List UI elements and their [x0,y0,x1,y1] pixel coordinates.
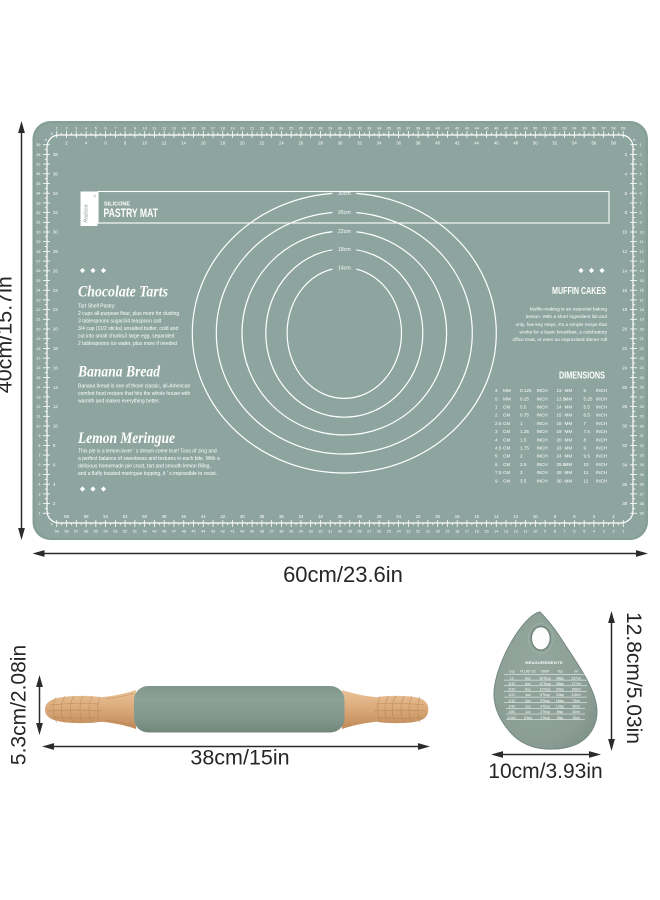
svg-text:20: 20 [53,327,58,332]
svg-text:16tsp: 16tsp [556,699,564,703]
svg-text:15: 15 [484,529,488,533]
svg-text:9: 9 [38,434,40,438]
svg-text:48tsp: 48tsp [556,676,564,680]
svg-text:INCH: INCH [596,454,607,459]
svg-text:18: 18 [455,514,460,519]
svg-text:20: 20 [436,529,440,533]
svg-text:6.5: 6.5 [584,413,591,418]
svg-text:MM: MM [565,421,573,426]
svg-text:INCH: INCH [596,421,607,426]
svg-text:Tsp: Tsp [557,670,562,674]
svg-text:31: 31 [348,127,352,131]
svg-text:34: 34 [640,463,644,467]
svg-text:177ml: 177ml [571,682,580,686]
svg-text:INCH: INCH [537,388,548,393]
svg-text:MM: MM [565,413,573,418]
svg-text:1/2C: 1/2C [508,693,516,697]
svg-text:36: 36 [36,172,40,176]
svg-text:39: 39 [426,127,430,131]
svg-text:12: 12 [36,405,40,409]
svg-text:54: 54 [103,514,108,519]
svg-text:3: 3 [640,163,642,167]
svg-text:47: 47 [172,529,176,533]
svg-text:36: 36 [622,482,627,487]
svg-text:56: 56 [592,140,597,145]
svg-text:13: 13 [640,260,644,264]
svg-text:INCH: INCH [537,478,548,483]
svg-text:46: 46 [182,529,186,533]
svg-text:18: 18 [221,127,225,131]
svg-text:7.5: 7.5 [584,429,591,434]
svg-text:5: 5 [495,396,498,401]
svg-text:MM: MM [565,478,573,483]
svg-text:9: 9 [495,478,498,483]
svg-text:INCH: INCH [537,429,548,434]
svg-text:1Tbsp: 1Tbsp [540,716,550,720]
svg-text:MM: MM [565,462,573,467]
svg-text:10: 10 [622,230,627,235]
svg-text:FLUID OZ: FLUID OZ [520,670,535,674]
svg-text:3: 3 [603,529,605,533]
svg-text:28: 28 [357,514,362,519]
svg-text:32: 32 [318,514,323,519]
svg-text:30ml: 30ml [572,710,580,714]
svg-text:4oz: 4oz [525,693,531,697]
svg-text:30: 30 [36,230,40,234]
svg-text:4.5: 4.5 [495,446,502,451]
svg-text:32tsp: 32tsp [556,688,564,692]
svg-text:24: 24 [396,529,400,533]
svg-text:38: 38 [260,514,265,519]
svg-text:DIMENSIONS: DIMENSIONS [559,369,605,381]
svg-text:55: 55 [94,529,98,533]
svg-text:24: 24 [279,127,283,131]
svg-text:Tart Shell Pastry:: Tart Shell Pastry: [78,303,116,309]
svg-text:5: 5 [640,182,642,186]
svg-text:2: 2 [495,413,498,418]
svg-text:18: 18 [36,347,40,351]
svg-text:48: 48 [162,529,166,533]
svg-text:25: 25 [387,529,391,533]
svg-text:2.5: 2.5 [520,462,527,467]
svg-text:5: 5 [583,529,585,533]
svg-text:38: 38 [416,127,420,131]
svg-text:10cm/3.93in: 10cm/3.93in [488,760,602,783]
svg-text:1/8C: 1/8C [508,710,516,714]
svg-text:19: 19 [640,318,644,322]
svg-text:29: 29 [348,529,352,533]
svg-text:22: 22 [53,307,58,312]
svg-text:CM: CM [503,413,510,418]
svg-text:1: 1 [495,405,498,410]
svg-text:30: 30 [338,140,343,145]
svg-text:1.75: 1.75 [520,446,529,451]
svg-text:23: 23 [557,446,563,451]
svg-text:3/4 cup (11/2 sticks) unsalted: 3/4 cup (11/2 sticks) unsalted butter, c… [78,326,178,332]
svg-text:10: 10 [533,514,538,519]
svg-text:11Tbsp: 11Tbsp [539,688,550,692]
svg-text:1/16C: 1/16C [507,716,517,720]
svg-text:11: 11 [152,127,156,131]
svg-text:INCH: INCH [596,446,607,451]
svg-text:18: 18 [455,529,459,533]
svg-text:19: 19 [230,127,234,131]
svg-text:3: 3 [75,127,77,131]
svg-text:11: 11 [584,478,589,483]
svg-text:10: 10 [584,462,590,467]
svg-text:5oz: 5oz [525,688,531,692]
svg-text:29: 29 [328,127,332,131]
svg-text:8: 8 [554,529,556,533]
svg-text:12: 12 [514,529,518,533]
svg-text:10: 10 [533,529,537,533]
svg-text:0.5: 0.5 [520,405,527,410]
svg-text:7: 7 [640,201,642,205]
svg-text:14: 14 [622,268,627,273]
svg-text:48: 48 [162,514,167,519]
svg-text:MM: MM [565,429,573,434]
svg-text:23: 23 [36,298,40,302]
svg-text:11: 11 [584,470,589,475]
svg-text:1: 1 [622,529,624,533]
svg-text:45: 45 [191,529,195,533]
svg-text:6: 6 [640,192,642,196]
svg-text:37: 37 [269,529,273,533]
svg-text:33: 33 [367,127,371,131]
svg-text:16: 16 [36,366,40,370]
svg-text:22: 22 [260,140,265,145]
svg-text:2 tablespoons ice water, plus: 2 tablespoons ice water, plus more if ne… [78,341,177,347]
svg-text:INCH: INCH [537,446,548,451]
svg-text:43: 43 [211,529,215,533]
svg-text:MM: MM [565,470,573,475]
svg-text:42: 42 [221,529,225,533]
svg-text:INCH: INCH [537,470,548,475]
svg-text:26: 26 [53,268,58,273]
svg-text:13: 13 [504,529,508,533]
svg-text:INCH: INCH [537,437,548,442]
svg-text:2oz: 2oz [525,705,531,709]
svg-text:MM: MM [503,388,511,393]
svg-text:3: 3 [38,492,40,496]
svg-text:INCH: INCH [537,405,548,410]
svg-text:16: 16 [622,288,627,293]
svg-text:INCH: INCH [596,470,607,475]
svg-text:INCH: INCH [537,396,548,401]
svg-text:14: 14 [557,405,563,410]
svg-text:38: 38 [622,501,627,506]
svg-text:15: 15 [640,279,644,283]
svg-text:24: 24 [53,288,58,293]
svg-text:38cm/15in: 38cm/15in [190,746,289,770]
svg-text:79ml: 79ml [572,699,580,703]
svg-text:CM: CM [503,478,510,483]
svg-text:28: 28 [640,405,644,409]
svg-text:lesson. With a short ingredien: lesson. With a short ingredient list and [526,314,607,320]
svg-text:59: 59 [55,529,59,533]
svg-text:0.5oz: 0.5oz [524,716,533,720]
svg-text:57: 57 [602,127,606,131]
svg-text:MM: MM [565,446,573,451]
svg-text:28: 28 [53,249,58,254]
svg-text:39: 39 [250,529,254,533]
svg-text:8oz: 8oz [525,676,531,680]
svg-text:2/3C: 2/3C [508,688,516,692]
svg-text:25: 25 [36,279,40,283]
svg-text:12: 12 [162,140,167,145]
svg-text:34: 34 [377,127,381,131]
svg-text:31: 31 [36,221,40,225]
svg-text:17: 17 [465,529,469,533]
svg-text:20: 20 [435,514,440,519]
svg-text:3.5: 3.5 [520,478,527,483]
svg-text:3/4C: 3/4C [508,682,516,686]
svg-text:26cm: 26cm [338,210,351,216]
svg-text:9: 9 [134,127,136,131]
svg-text:58: 58 [64,514,69,519]
svg-text:37: 37 [36,163,40,167]
svg-text:34: 34 [299,514,304,519]
svg-text:office treat, or even an impro: office treat, or even an improvised dinn… [512,337,607,343]
svg-text:20: 20 [622,327,627,332]
svg-text:30: 30 [640,424,644,428]
svg-text:32: 32 [640,444,644,448]
svg-text:18: 18 [640,308,644,312]
svg-text:23: 23 [640,357,644,361]
svg-text:24: 24 [279,140,284,145]
svg-text:Banana Bread: Banana Bread [77,364,161,381]
svg-text:29: 29 [640,415,644,419]
svg-text:4: 4 [495,437,498,442]
svg-text:10: 10 [53,424,58,429]
svg-text:28: 28 [357,529,361,533]
svg-text:34: 34 [299,529,303,533]
svg-text:51: 51 [543,127,547,131]
svg-text:8: 8 [38,444,40,448]
svg-text:30: 30 [338,127,342,131]
svg-text:5: 5 [495,454,498,459]
svg-text:37: 37 [640,492,644,496]
svg-text:CM: CM [503,454,510,459]
svg-text:35: 35 [640,473,644,477]
svg-text:50: 50 [143,529,147,533]
svg-text:42: 42 [455,140,460,145]
svg-text:22: 22 [416,514,421,519]
svg-text:27: 27 [367,529,371,533]
svg-text:41: 41 [230,529,234,533]
svg-text:16: 16 [474,514,479,519]
svg-text:MEASUREMENTS: MEASUREMENTS [525,660,563,665]
svg-text:5: 5 [584,388,587,393]
svg-text:6: 6 [105,127,107,131]
svg-text:60cm/23.6in: 60cm/23.6in [283,562,403,587]
svg-text:30: 30 [53,230,58,235]
svg-text:MM: MM [565,396,573,401]
svg-text:38: 38 [416,140,421,145]
svg-text:5.25: 5.25 [584,396,593,401]
svg-text:9.5: 9.5 [584,454,591,459]
svg-text:3: 3 [520,470,523,475]
svg-text:comfort food recipes that hits: comfort food recipes that hits the whole… [78,391,191,397]
svg-text:13: 13 [557,388,563,393]
svg-text:MM: MM [565,454,573,459]
svg-text:cut into small chunks3 large e: cut into small chunks3 large egg, separa… [78,333,175,339]
svg-text:16: 16 [640,289,644,293]
svg-text:CM: CM [503,446,510,451]
svg-text:1/4C: 1/4C [508,705,516,709]
svg-text:35: 35 [387,127,391,131]
svg-text:INCH: INCH [596,396,607,401]
svg-text:11: 11 [37,415,41,419]
svg-text:50: 50 [533,140,538,145]
svg-text:2: 2 [612,529,614,533]
svg-text:44: 44 [201,514,206,519]
svg-text:warmth and makes everything be: warmth and makes everything better. [78,399,160,405]
svg-text:20: 20 [557,437,563,442]
svg-text:7.5: 7.5 [495,470,502,475]
svg-text:INCH: INCH [537,462,548,467]
svg-text:ml: ml [574,670,578,674]
svg-text:36: 36 [279,529,283,533]
svg-text:41: 41 [445,127,449,131]
svg-text:36: 36 [53,171,58,176]
svg-text:16: 16 [53,365,58,370]
svg-text:MM: MM [503,396,511,401]
svg-text:1.25: 1.25 [520,429,529,434]
svg-text:CM: CM [503,437,510,442]
svg-text:3: 3 [495,388,498,393]
svg-text:6: 6 [38,463,40,467]
svg-text:56: 56 [592,127,596,131]
svg-text:17: 17 [640,298,644,302]
svg-text:4Tbsp: 4Tbsp [540,705,550,709]
svg-text:15: 15 [191,127,195,131]
svg-text:50: 50 [142,514,147,519]
svg-text:14: 14 [494,529,498,533]
svg-text:33: 33 [309,529,313,533]
svg-text:24tsp: 24tsp [556,693,564,697]
svg-text:27: 27 [309,127,313,131]
svg-text:MM: MM [565,405,573,410]
svg-text:7: 7 [38,454,40,458]
svg-text:19: 19 [36,337,40,341]
svg-text:6: 6 [573,529,575,533]
svg-text:31: 31 [640,434,644,438]
svg-text:19: 19 [445,529,449,533]
svg-text:14cm: 14cm [338,266,351,272]
svg-text:CM: CM [503,405,510,410]
svg-text:53: 53 [113,529,117,533]
svg-text:52: 52 [123,514,128,519]
svg-text:INCH: INCH [537,413,548,418]
svg-text:29: 29 [36,240,40,244]
svg-text:13: 13 [36,395,40,399]
svg-text:20: 20 [240,140,245,145]
svg-text:Cup: Cup [509,670,515,674]
svg-text:49: 49 [152,529,156,533]
svg-text:52: 52 [553,140,558,145]
svg-text:26: 26 [36,269,40,273]
svg-text:2Tbsp: 2Tbsp [540,710,550,714]
svg-text:CM: CM [503,462,510,467]
svg-text:9: 9 [544,529,546,533]
svg-text:8: 8 [124,127,126,131]
svg-text:38: 38 [640,502,644,506]
svg-text:36tsp: 36tsp [556,682,564,686]
svg-text:8: 8 [584,437,587,442]
svg-text:TBSP: TBSP [541,670,551,674]
svg-text:20: 20 [240,127,244,131]
svg-text:INCH: INCH [596,405,607,410]
svg-text:28: 28 [36,250,40,254]
svg-text:8Tbsp: 8Tbsp [540,693,550,697]
svg-text:28: 28 [622,404,627,409]
svg-text:7: 7 [584,421,587,426]
svg-text:6tsp: 6tsp [557,710,564,714]
svg-text:26: 26 [377,529,381,533]
svg-text:31: 31 [328,529,332,533]
svg-text:118ml: 118ml [572,693,581,697]
svg-text:15: 15 [36,376,40,380]
svg-text:18: 18 [557,421,563,426]
svg-text:2.5: 2.5 [495,421,502,426]
svg-text:52: 52 [553,127,557,131]
svg-text:2: 2 [65,127,67,131]
svg-text:34: 34 [36,192,40,196]
svg-text:59ml: 59ml [572,705,580,709]
svg-text:and a fluffy toasted meringue: and a fluffy toasted meringue topping, i… [78,471,217,477]
svg-text:30: 30 [557,478,563,483]
svg-text:1/3C: 1/3C [508,699,516,703]
svg-text:0.125: 0.125 [520,388,532,393]
svg-text:47: 47 [504,127,508,131]
svg-text:15ml: 15ml [572,716,580,720]
svg-text:56: 56 [84,529,88,533]
svg-text:40: 40 [436,127,440,131]
svg-text:18cm: 18cm [338,247,351,253]
svg-text:38: 38 [53,152,58,157]
svg-text:40: 40 [240,514,245,519]
svg-text:44: 44 [475,127,479,131]
svg-text:15: 15 [557,413,563,418]
svg-text:32: 32 [357,140,362,145]
svg-text:2 cups all-purpose flour, plus: 2 cups all-purpose flour, plus more for … [78,311,179,317]
svg-text:55: 55 [582,127,586,131]
svg-text:50: 50 [533,127,537,131]
svg-text:35: 35 [36,182,40,186]
svg-text:158ml: 158ml [571,688,580,692]
svg-text:2: 2 [520,454,523,459]
svg-text:24: 24 [396,514,401,519]
svg-text:22: 22 [416,529,420,533]
svg-text:17: 17 [36,357,40,361]
svg-text:42: 42 [220,514,225,519]
svg-text:1: 1 [38,512,40,516]
svg-text:14: 14 [494,514,499,519]
svg-text:INCH: INCH [596,388,607,393]
svg-text:37: 37 [406,127,410,131]
svg-text:43: 43 [465,127,469,131]
svg-text:5: 5 [38,473,40,477]
svg-text:SILICONE: SILICONE [104,202,130,208]
svg-text:16: 16 [201,127,205,131]
svg-text:5: 5 [95,127,97,131]
svg-text:34: 34 [622,462,627,467]
svg-text:42: 42 [455,127,459,131]
svg-text:54: 54 [572,140,577,145]
svg-text:4: 4 [640,172,642,176]
svg-text:25: 25 [640,376,644,380]
